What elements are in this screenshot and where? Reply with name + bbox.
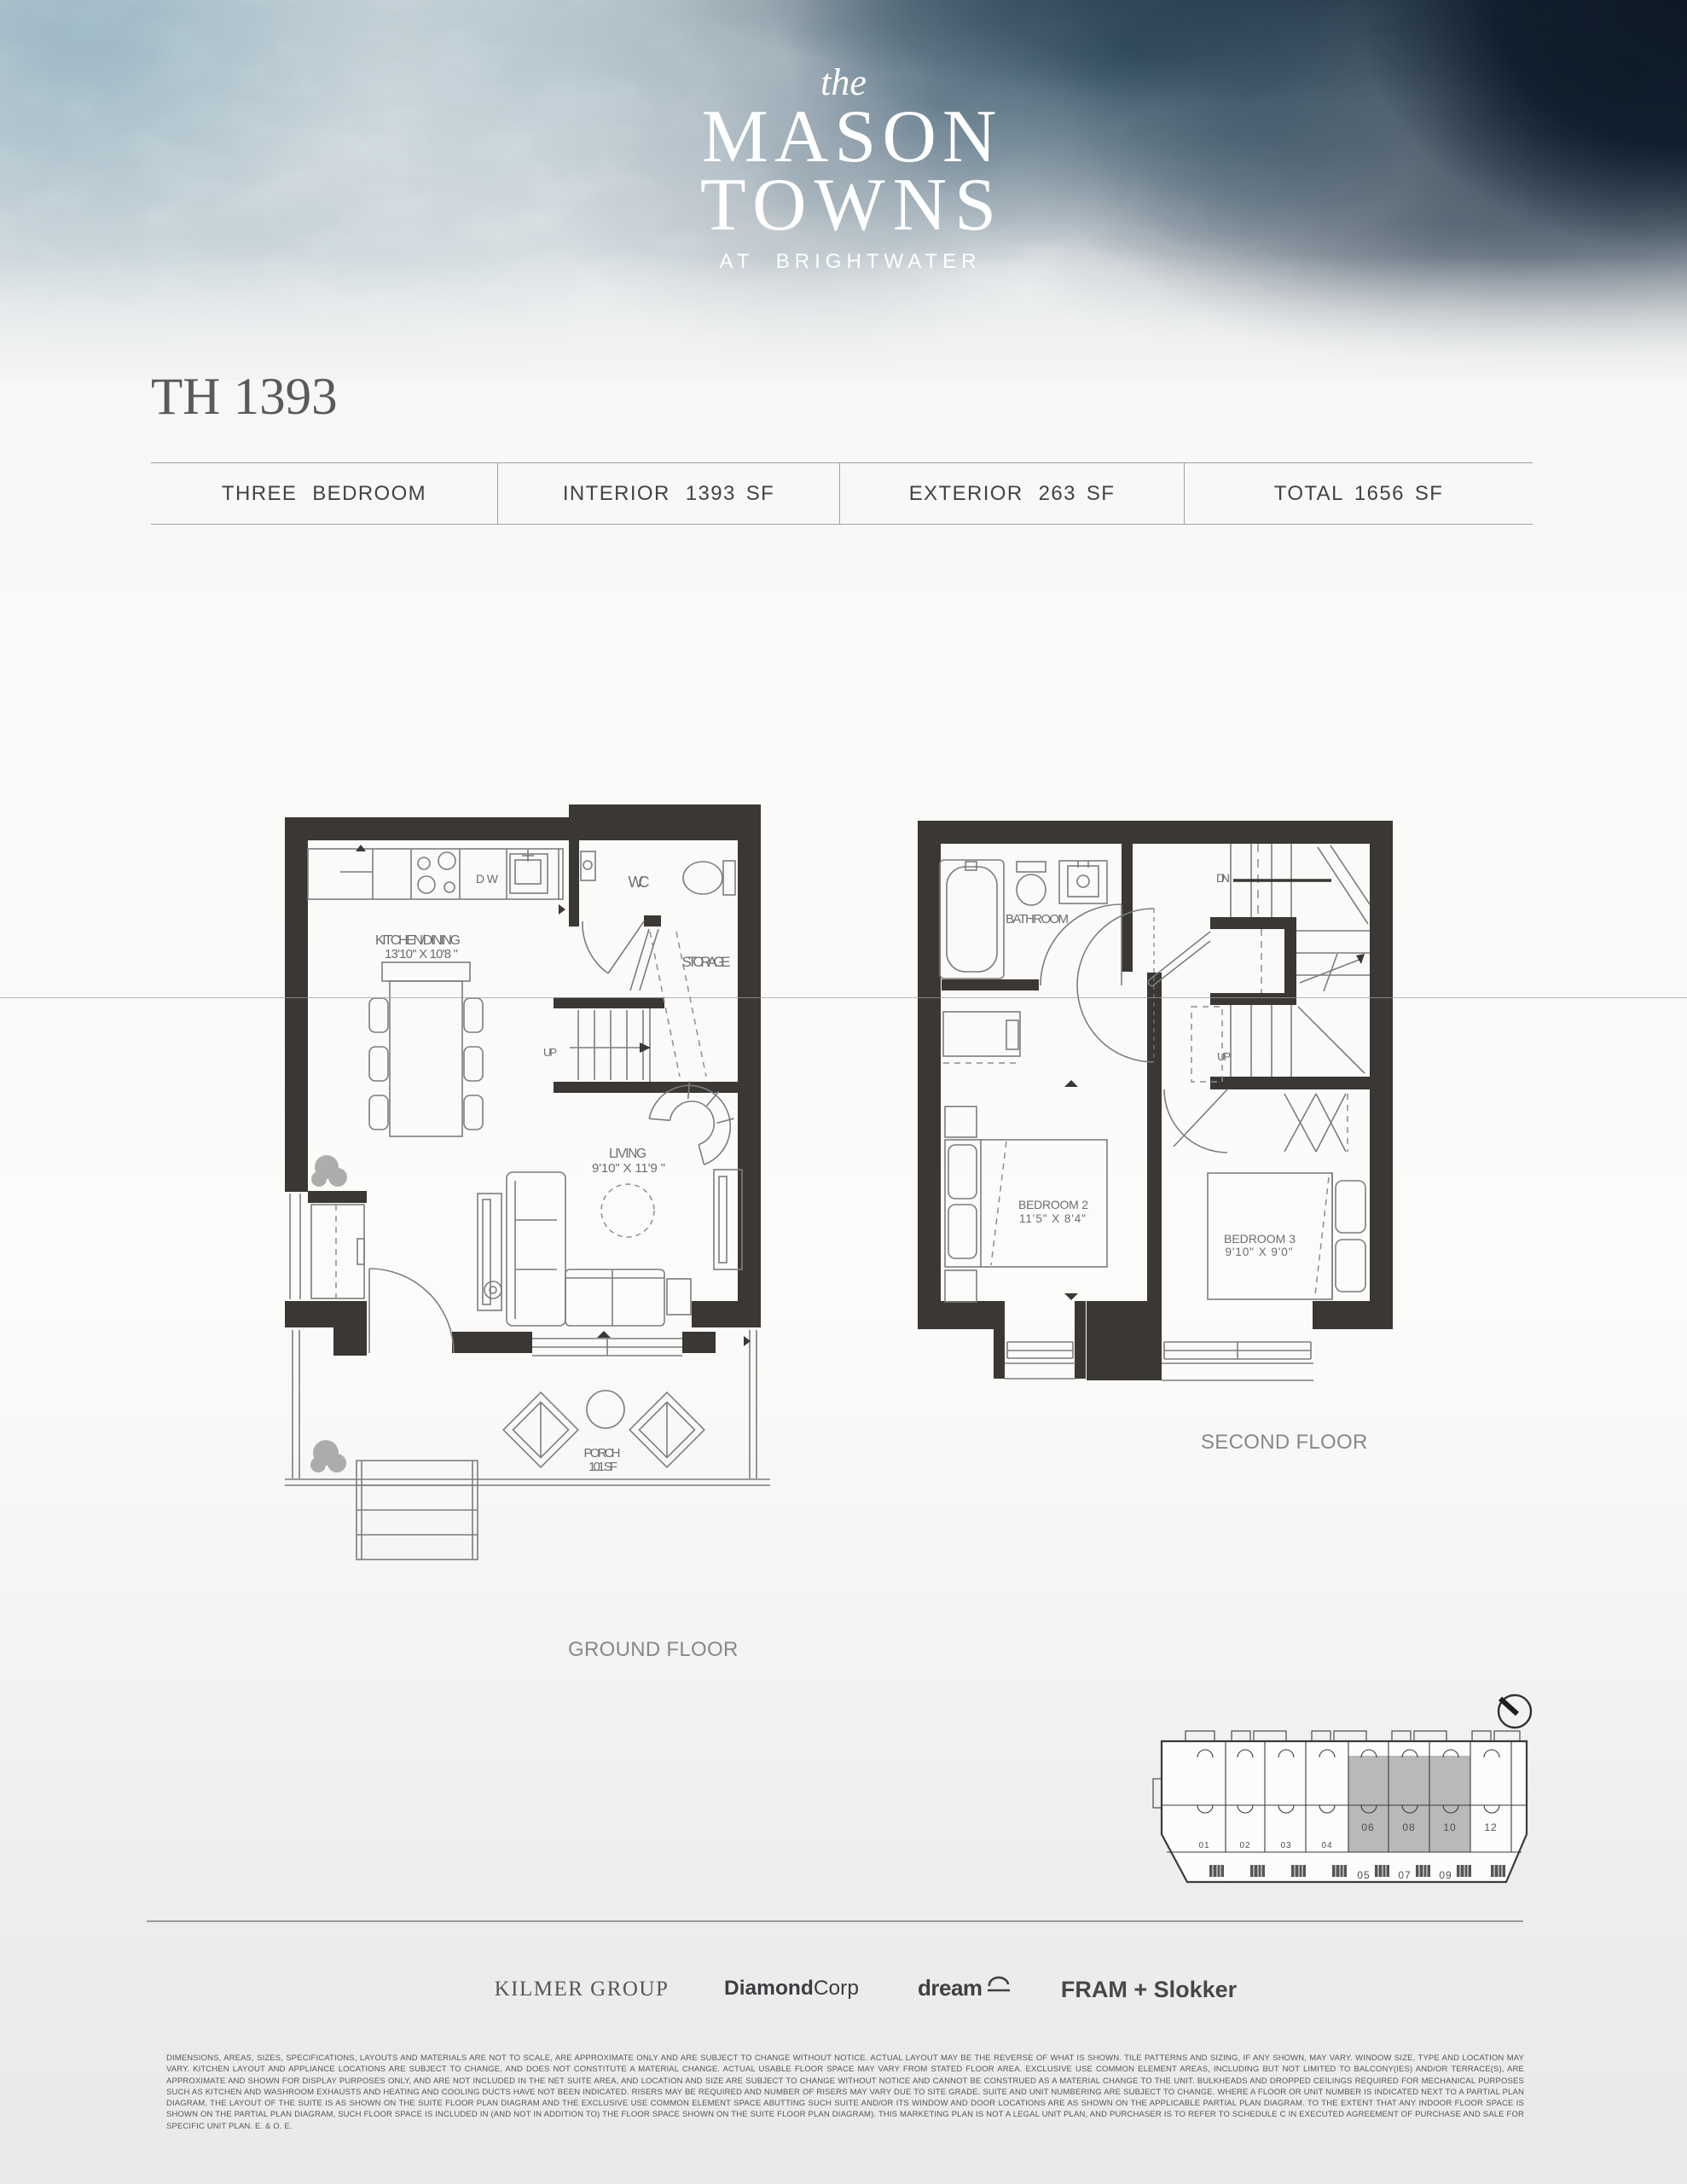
svg-text:UP: UP [1217, 1050, 1231, 1063]
svg-text:01: 01 [1198, 1841, 1209, 1850]
svg-text:09: 09 [1439, 1869, 1452, 1881]
svg-text:BEDROOM 3: BEDROOM 3 [1224, 1232, 1296, 1246]
svg-text:12: 12 [1484, 1821, 1497, 1833]
svg-text:04: 04 [1321, 1841, 1332, 1850]
svg-text:KITCHEN/DINING: KITCHEN/DINING [375, 933, 461, 948]
svg-text:UP: UP [543, 1046, 557, 1059]
svg-text:101 SF: 101 SF [588, 1460, 617, 1474]
svg-text:DW: DW [476, 872, 499, 886]
svg-text:9'10" X 11'9 ": 9'10" X 11'9 " [592, 1161, 665, 1176]
svg-text:11'5" X 8'4": 11'5" X 8'4" [1019, 1212, 1086, 1225]
svg-text:9'10" X 9'0": 9'10" X 9'0" [1226, 1246, 1293, 1258]
svg-text:WC: WC [629, 874, 650, 891]
svg-text:PORCH: PORCH [584, 1446, 621, 1461]
svg-text:02: 02 [1239, 1841, 1250, 1850]
svg-text:03: 03 [1280, 1841, 1291, 1850]
svg-text:DN: DN [1216, 871, 1230, 885]
svg-text:STORAGE: STORAGE [682, 954, 731, 970]
svg-text:07: 07 [1398, 1869, 1411, 1881]
svg-text:BEDROOM 2: BEDROOM 2 [1018, 1198, 1088, 1211]
svg-text:06: 06 [1361, 1821, 1374, 1833]
svg-text:05: 05 [1357, 1869, 1370, 1881]
svg-text:10: 10 [1443, 1821, 1456, 1833]
svg-text:13'10" X 10'8 ": 13'10" X 10'8 " [385, 947, 458, 961]
svg-text:BATHROOM: BATHROOM [1006, 912, 1069, 926]
svg-text:LIVING: LIVING [609, 1147, 646, 1161]
svg-text:08: 08 [1402, 1821, 1415, 1833]
